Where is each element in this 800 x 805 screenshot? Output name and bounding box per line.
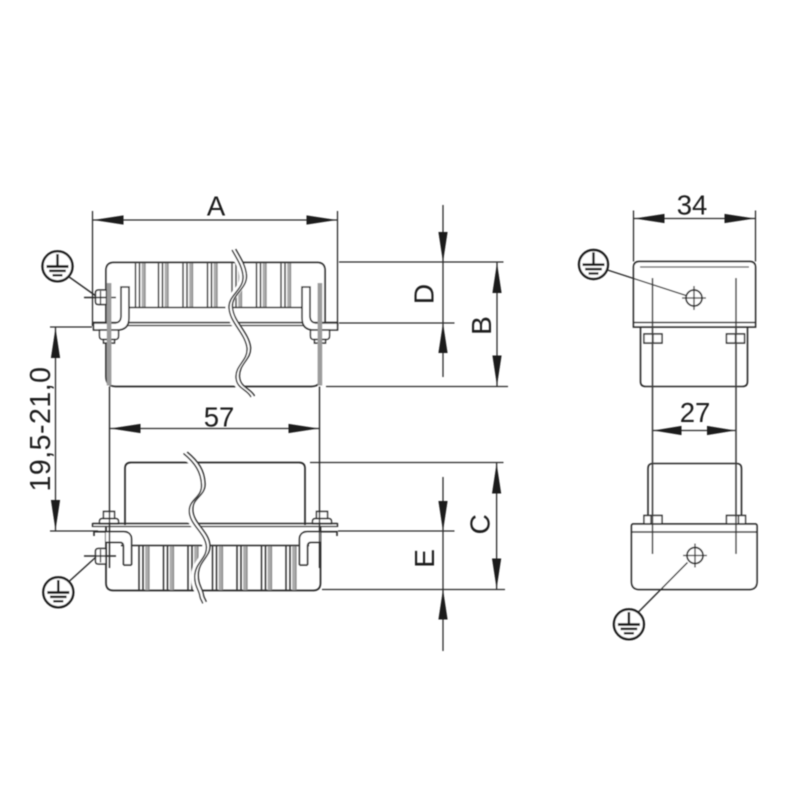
svg-text:19,5-21,0: 19,5-21,0 (25, 367, 57, 492)
svg-text:D: D (409, 284, 440, 304)
svg-text:34: 34 (677, 190, 708, 221)
svg-text:57: 57 (204, 402, 235, 433)
svg-text:A: A (207, 191, 226, 222)
svg-text:B: B (466, 316, 497, 335)
svg-text:27: 27 (680, 397, 711, 428)
svg-text:E: E (409, 549, 440, 568)
svg-text:C: C (464, 514, 495, 534)
